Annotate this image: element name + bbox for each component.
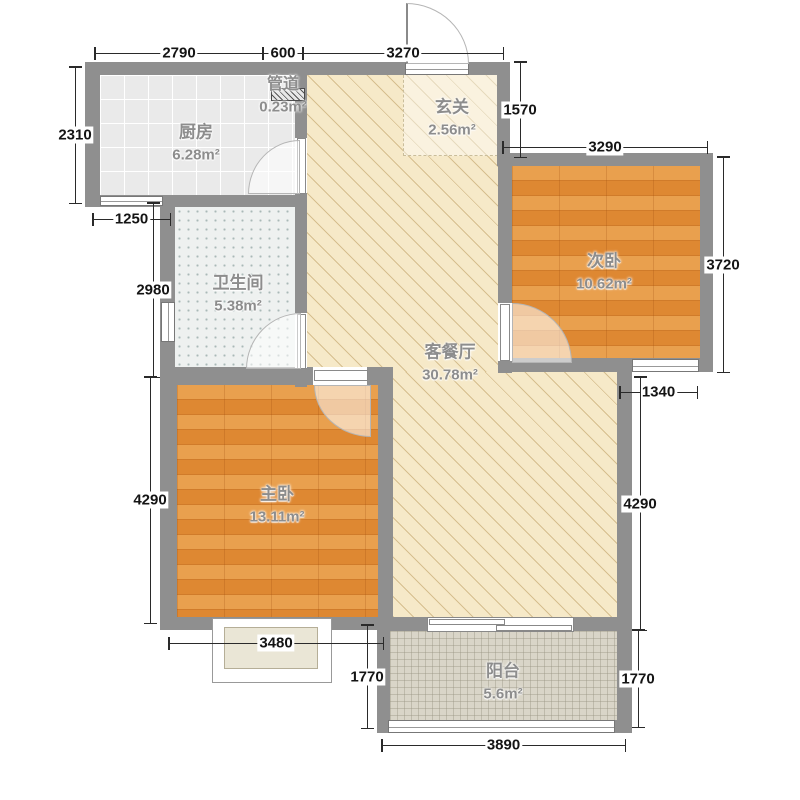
entry-label: 玄关 2.56m² bbox=[428, 96, 476, 141]
dim-kitchen-height-label: 2310 bbox=[56, 127, 93, 144]
dim-kitchen-window: 1250 bbox=[93, 219, 170, 220]
dim-master-width: 3480 bbox=[169, 643, 383, 644]
master-door-leaf bbox=[314, 370, 368, 381]
kitchen-name: 厨房 bbox=[172, 121, 220, 145]
kitchen-area: 6.28m² bbox=[172, 144, 220, 165]
bathroom-area: 5.38m² bbox=[213, 295, 264, 316]
balcony-window bbox=[388, 720, 615, 733]
dim-entry-side: 1570 bbox=[520, 62, 521, 157]
dim-kitchen-width-label: 2790 bbox=[160, 45, 197, 62]
living-floor-lower bbox=[393, 372, 617, 617]
entrance-door-threshold bbox=[405, 63, 469, 75]
balcony-sliding-door bbox=[427, 617, 574, 632]
floor-plan: 2790 600 3270 2310 1250 2980 1570 3290 3… bbox=[0, 0, 800, 800]
bathroom-name: 卫生间 bbox=[213, 272, 264, 296]
dim-master-side: 4290 bbox=[150, 377, 151, 623]
living-area: 30.78m² bbox=[422, 364, 478, 385]
kitchen-label: 厨房 6.28m² bbox=[172, 121, 220, 166]
bedroom2-label: 次卧 10.62m² bbox=[576, 250, 632, 295]
sliding-panel-right bbox=[496, 625, 572, 631]
balcony-label: 阳台 5.6m² bbox=[483, 660, 522, 705]
dim-entry-width: 3270 bbox=[303, 53, 503, 54]
master-label: 主卧 13.11m² bbox=[249, 483, 304, 528]
dim-master-side-label: 4290 bbox=[131, 492, 168, 509]
duct-name: 管道 bbox=[267, 70, 299, 94]
living-label: 客餐厅 30.78m² bbox=[422, 341, 478, 386]
dim-bedroom2-width-label: 3290 bbox=[586, 139, 623, 156]
balcony-area: 5.6m² bbox=[483, 683, 522, 704]
bathroom-window bbox=[161, 302, 175, 342]
dim-duct-width: 600 bbox=[263, 53, 303, 54]
dim-bathroom-height: 2980 bbox=[153, 203, 154, 377]
entry-name: 玄关 bbox=[428, 96, 476, 120]
bedroom2-name: 次卧 bbox=[576, 250, 632, 274]
master-name: 主卧 bbox=[249, 483, 304, 507]
dim-bedroom2-height: 3720 bbox=[723, 157, 724, 372]
dim-living-side-label: 4290 bbox=[621, 495, 658, 512]
dim-bathroom-height-label: 2980 bbox=[134, 282, 171, 299]
duct-area: 0.23m² bbox=[259, 99, 307, 116]
bathroom-label: 卫生间 5.38m² bbox=[213, 272, 264, 317]
dim-bedroom2-width: 3290 bbox=[503, 147, 707, 148]
dim-kitchen-window-label: 1250 bbox=[113, 211, 150, 228]
living-name: 客餐厅 bbox=[422, 341, 478, 365]
wall-master-right bbox=[378, 372, 393, 630]
dim-entry-width-label: 3270 bbox=[384, 45, 421, 62]
dim-bedroom2-height-label: 3720 bbox=[704, 256, 741, 273]
dim-living-side: 4290 bbox=[640, 377, 641, 630]
dim-balcony-width-label: 3890 bbox=[485, 737, 522, 754]
dim-bedroom2-window: 1340 bbox=[620, 392, 697, 393]
bedroom2-door-leaf bbox=[500, 304, 510, 361]
dim-kitchen-width: 2790 bbox=[95, 53, 263, 54]
dim-duct-width-label: 600 bbox=[268, 45, 297, 62]
dim-balcony-left-label: 1770 bbox=[348, 668, 385, 685]
dim-kitchen-height: 2310 bbox=[75, 67, 76, 203]
entry-area: 2.56m² bbox=[428, 119, 476, 140]
dim-balcony-left: 1770 bbox=[367, 625, 368, 728]
bedroom2-window bbox=[632, 359, 699, 372]
sliding-panel-left bbox=[429, 619, 505, 625]
master-area: 13.11m² bbox=[249, 506, 304, 527]
dim-entry-side-label: 1570 bbox=[501, 101, 538, 118]
balcony-name: 阳台 bbox=[483, 660, 522, 684]
dim-master-width-label: 3480 bbox=[257, 635, 294, 652]
dim-balcony-right: 1770 bbox=[638, 630, 639, 727]
dim-bedroom2-window-label: 1340 bbox=[640, 384, 677, 401]
bedroom2-area: 10.62m² bbox=[576, 273, 632, 294]
dim-balcony-width: 3890 bbox=[382, 745, 625, 746]
dim-balcony-right-label: 1770 bbox=[619, 670, 656, 687]
